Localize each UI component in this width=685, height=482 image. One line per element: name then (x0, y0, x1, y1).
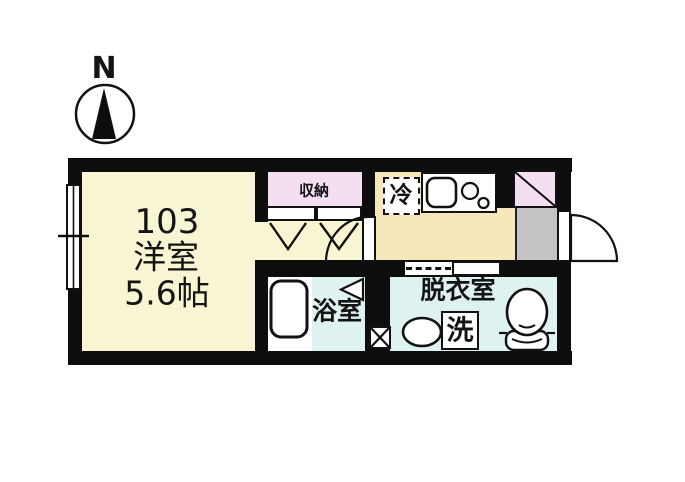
entrance-floor (515, 207, 557, 260)
dressing-sliding-door (452, 261, 501, 276)
north-needle-icon (92, 88, 116, 139)
bathroom-label: 浴室 (312, 299, 362, 324)
compass (76, 85, 134, 143)
bathtub-panel (268, 277, 312, 351)
window (66, 184, 81, 290)
shoe-cabinet (513, 170, 557, 208)
entry-door-leaf (557, 210, 571, 262)
entry-door-swing-arc (571, 215, 617, 261)
wall-bathroom-left (255, 260, 268, 351)
wall-closet-kitchen (362, 172, 375, 218)
dressing-opening-dashed-line (406, 267, 451, 270)
compass-circle (76, 85, 134, 143)
room-number: 103 (135, 205, 200, 239)
closet-door-right (316, 206, 362, 221)
kitchen-counter (421, 172, 497, 213)
room-type-label: 洋室 (133, 241, 199, 274)
wall-entrance-corner (497, 158, 513, 208)
washing-machine-label: 洗 (447, 318, 474, 345)
pipe-space (369, 326, 391, 349)
floor-plan: N 103 洋室 5.6帖 収納 冷 浴室 脱衣室 洗 (0, 0, 685, 482)
refrigerator-label: 冷 (390, 185, 413, 208)
room-size-label: 5.6帖 (124, 277, 209, 310)
dressing-room-label: 脱衣室 (420, 278, 495, 303)
compass-north-label: N (91, 54, 116, 84)
closet-label: 収納 (299, 184, 329, 199)
wall-bottom (68, 351, 572, 365)
room-door-leaf (362, 216, 376, 262)
closet-door-left (266, 206, 316, 221)
